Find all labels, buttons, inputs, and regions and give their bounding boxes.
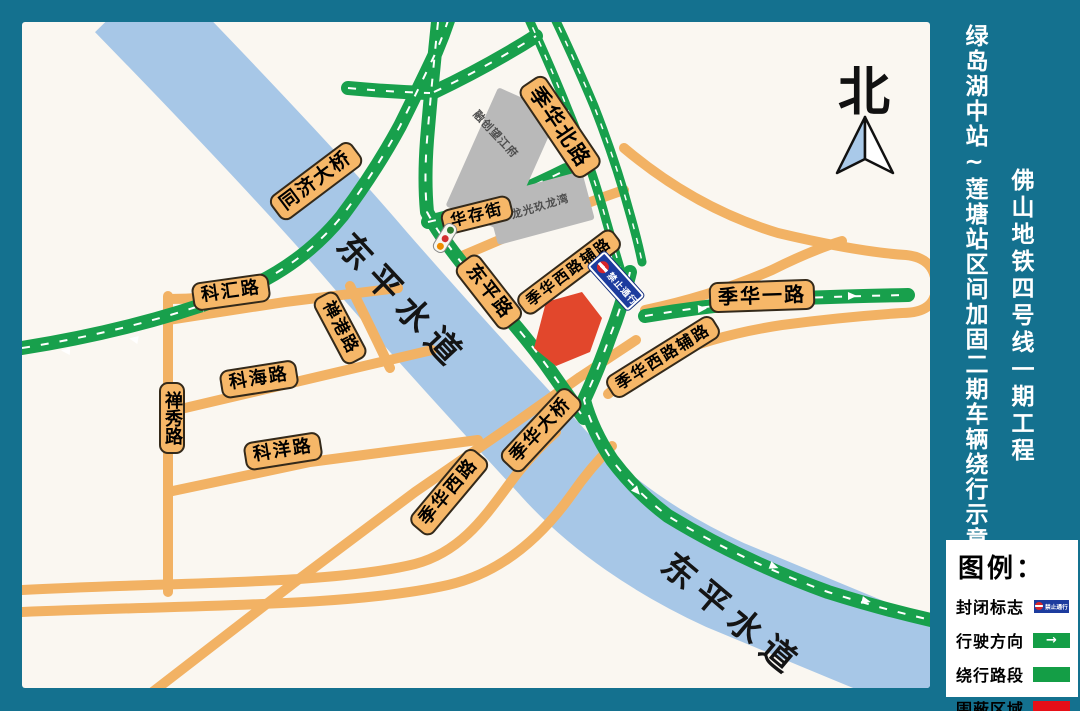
detour-road-swatch	[1033, 667, 1070, 682]
enclosed-area-swatch	[1033, 701, 1070, 711]
direction-arrow-swatch: →	[1033, 633, 1070, 648]
closure-sign-swatch: 禁止通行	[1033, 599, 1070, 614]
north-arrow-icon	[830, 114, 900, 178]
road-label-chanxiu: 禅秀路	[159, 382, 185, 454]
legend-item-closure: 封闭标志 禁止通行	[956, 594, 1070, 618]
legend-item-enclosed: 围蔽区域	[956, 696, 1070, 711]
legend-item-direction: 行驶方向 →	[956, 628, 1070, 652]
project-title: 佛山地铁四号线一期工程	[1003, 168, 1037, 465]
no-entry-icon	[1035, 602, 1043, 610]
legend-item-detour: 绕行路段	[956, 662, 1070, 686]
diagram-title: 绿岛湖中站~莲塘站区间加固二期车辆绕行示意图	[957, 24, 991, 577]
detour-map-page: 融创望江府 龙光玖龙湾 东平水道 东平水道 同济大桥 科汇路 禅港路 科海路 禅…	[0, 0, 1080, 711]
legend-title: 图例：	[958, 548, 1070, 585]
legend-panel: 图例： 封闭标志 禁止通行 行驶方向 → 绕行路段 围蔽区域	[946, 540, 1078, 697]
road-label-jihua-one: 季华一路	[708, 279, 815, 314]
